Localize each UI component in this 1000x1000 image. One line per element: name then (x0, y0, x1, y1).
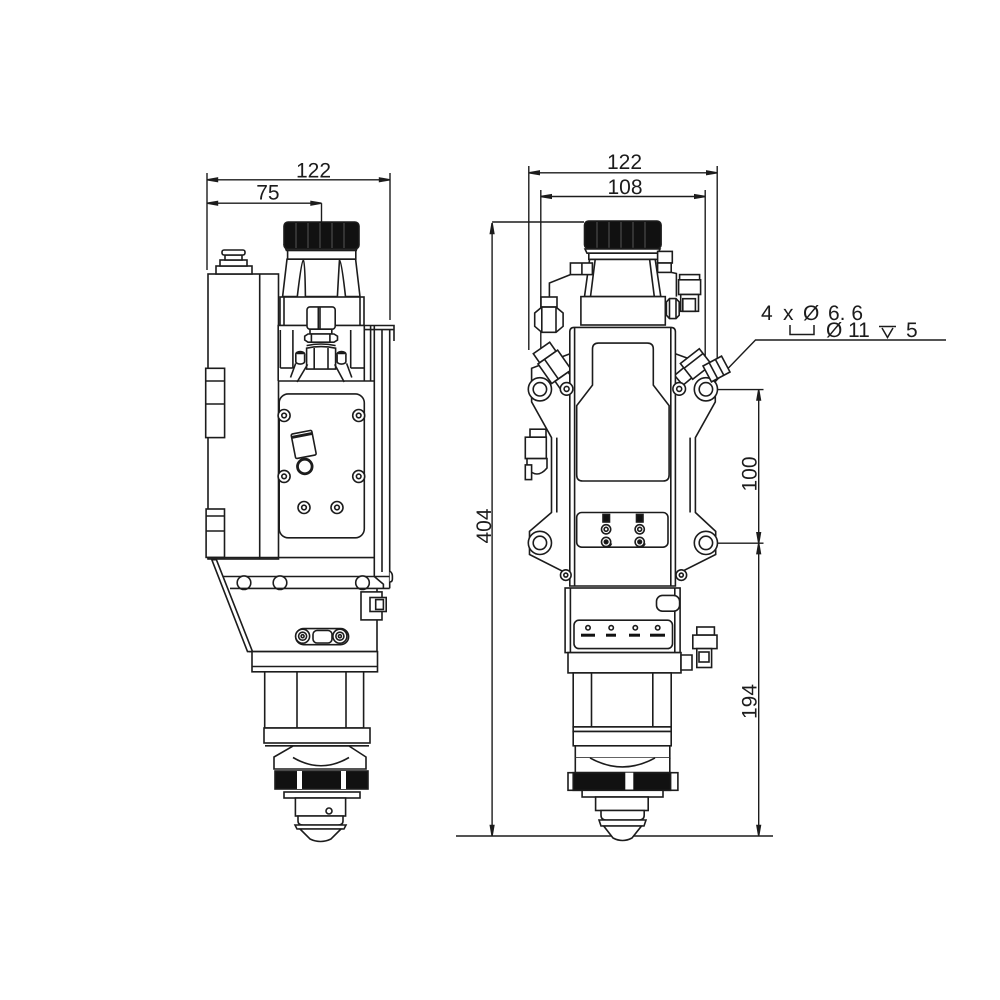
svg-text:Ø: Ø (803, 302, 819, 325)
svg-text:x: x (783, 302, 794, 325)
svg-text:Ø: Ø (826, 319, 842, 342)
svg-text:5: 5 (906, 319, 918, 342)
svg-text:100: 100 (739, 456, 762, 491)
svg-text:404: 404 (473, 508, 496, 543)
svg-text:194: 194 (739, 684, 762, 719)
svg-text:122: 122 (607, 151, 642, 174)
svg-text:122: 122 (296, 160, 331, 183)
svg-text:108: 108 (607, 176, 642, 199)
svg-text:4: 4 (761, 302, 773, 325)
svg-text:75: 75 (256, 182, 279, 205)
svg-text:11: 11 (848, 319, 870, 342)
